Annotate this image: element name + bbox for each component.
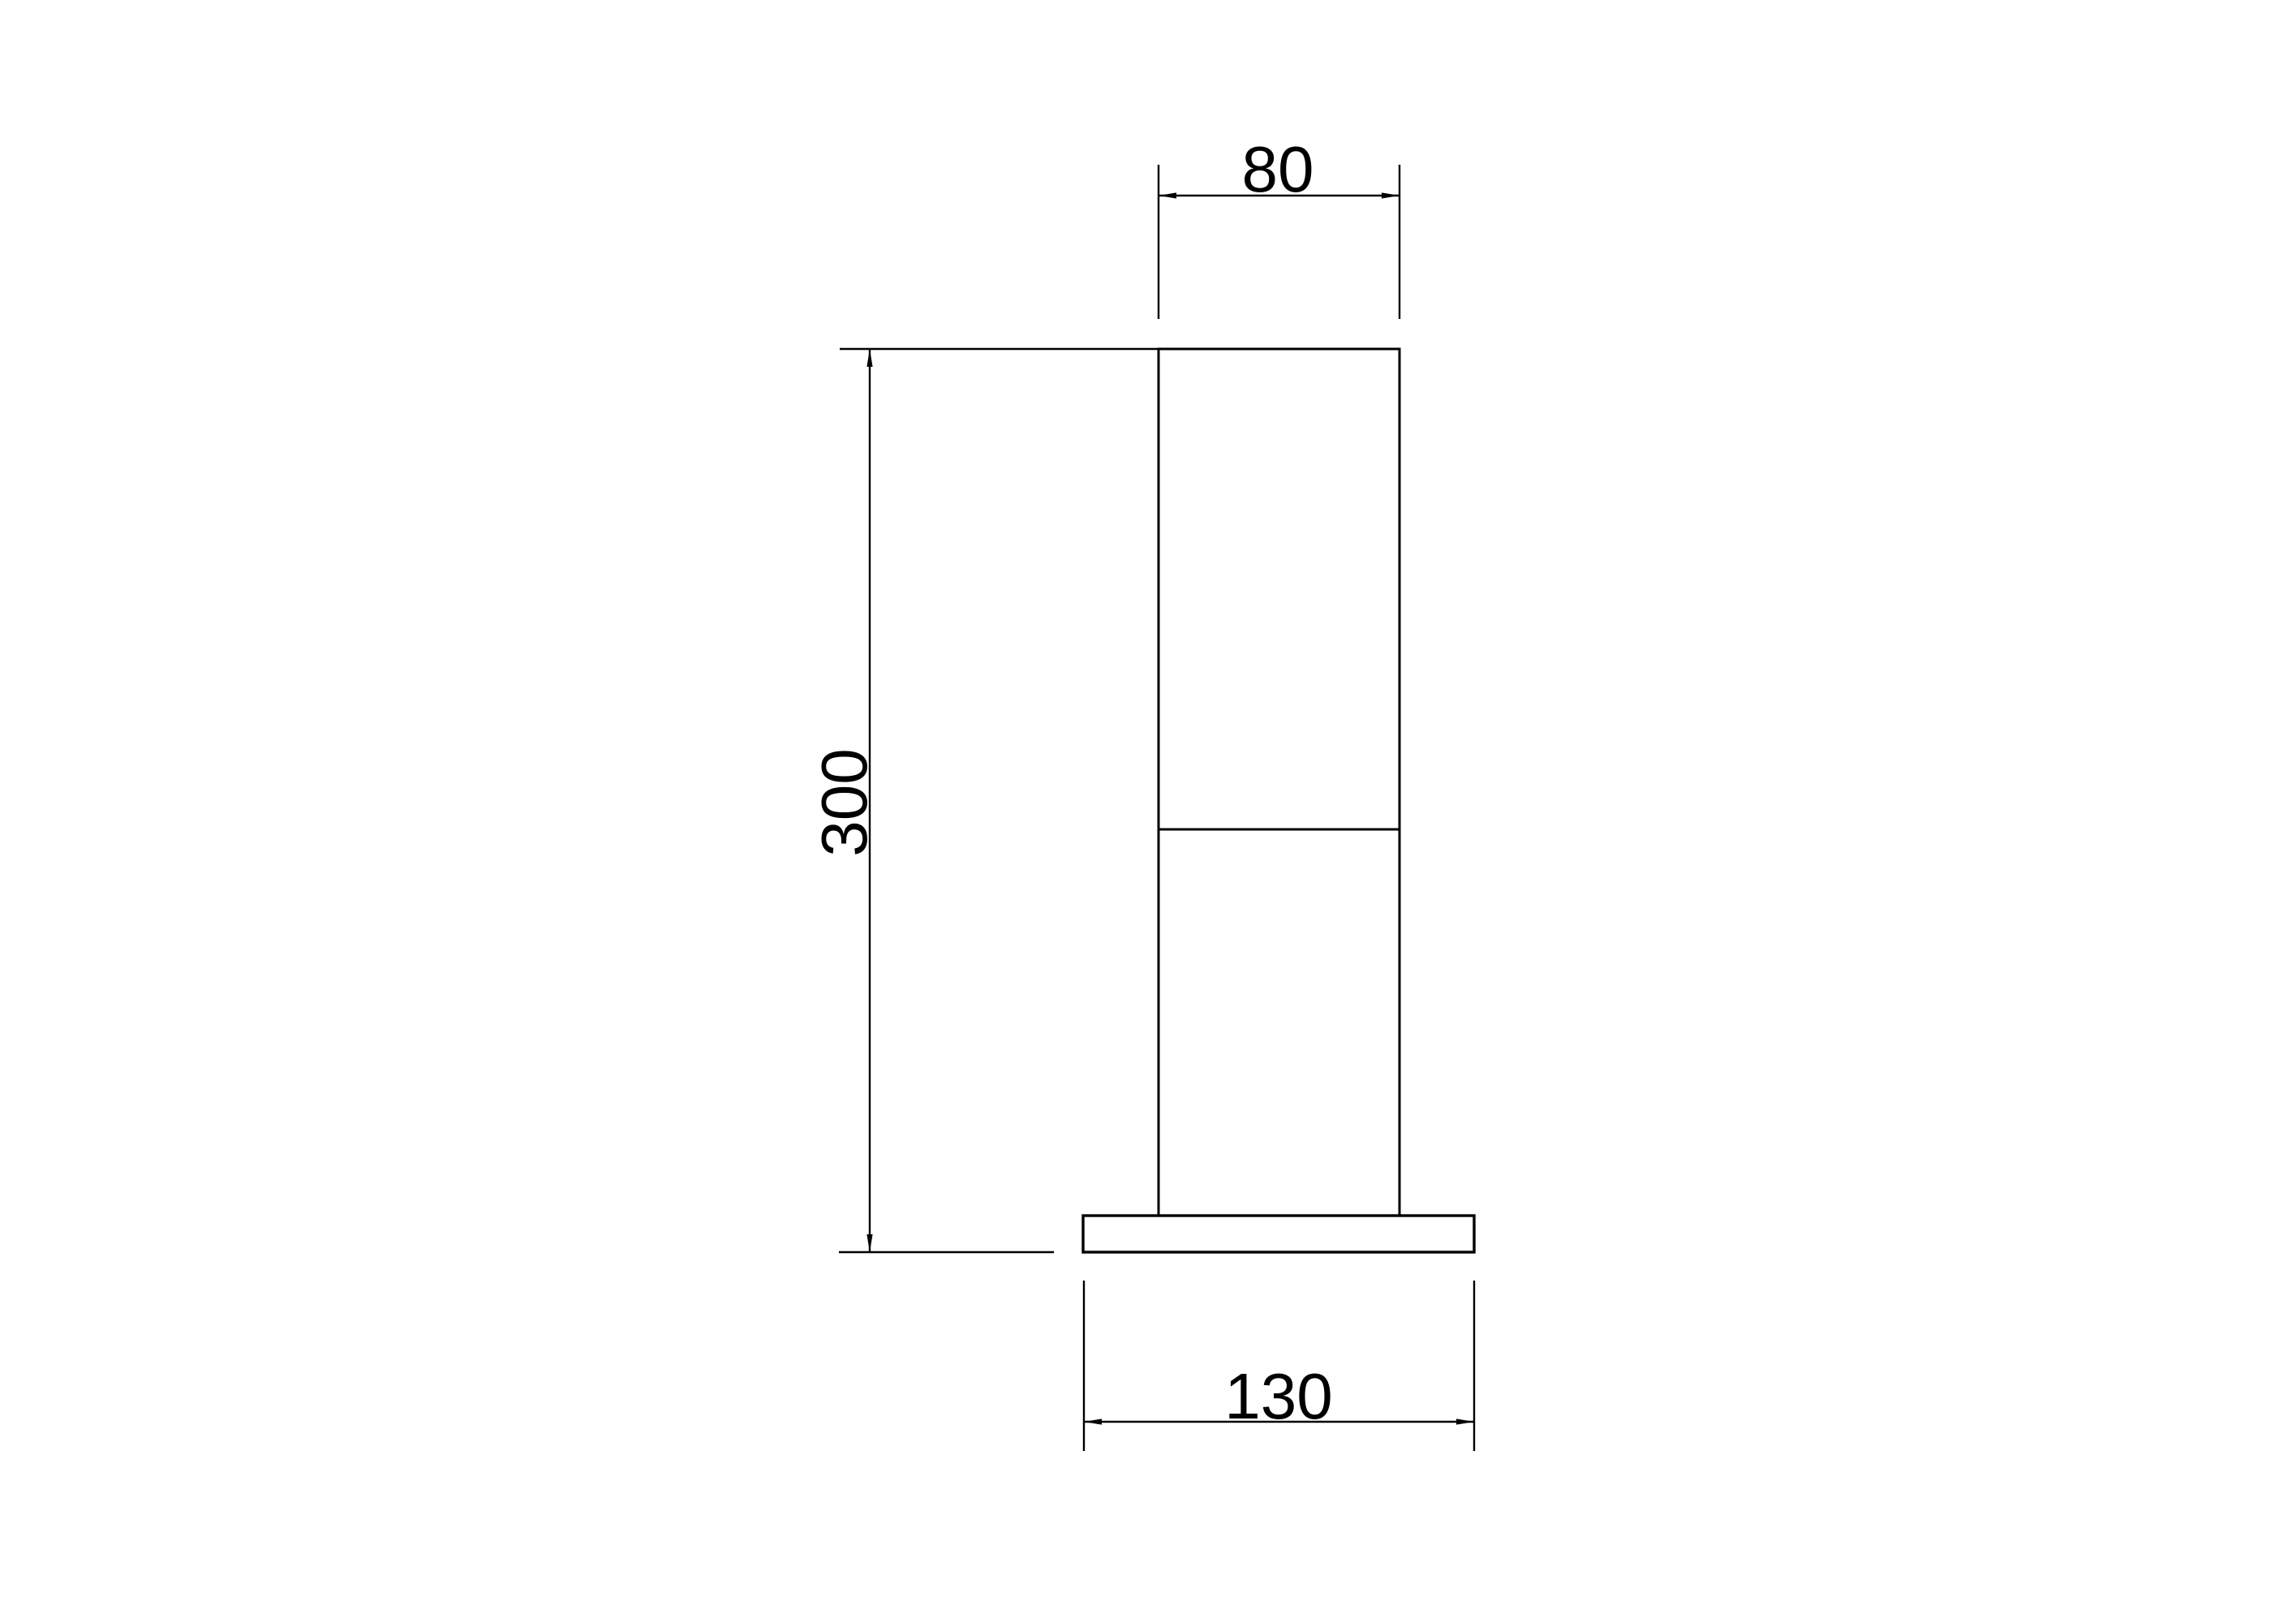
dim-300-arrow-top-icon [866, 349, 872, 367]
dim-130-arrow-left-icon [1084, 1419, 1102, 1424]
dimension-base-width: 130 [1084, 1281, 1474, 1451]
dim-130-arrow-right-icon [1456, 1419, 1474, 1424]
bollard-column [1159, 349, 1400, 1216]
bollard-base-plate [1083, 1216, 1474, 1252]
dim-300-label: 300 [808, 748, 880, 856]
dim-80-arrow-left-icon [1159, 192, 1176, 198]
dim-300-arrow-bottom-icon [866, 1234, 872, 1252]
technical-drawing-canvas: 80 300 130 [0, 0, 2296, 1623]
dimension-top-width: 80 [1159, 133, 1400, 319]
dim-130-label: 130 [1224, 1360, 1332, 1432]
dim-80-arrow-right-icon [1382, 192, 1400, 198]
dim-80-label: 80 [1242, 133, 1314, 205]
dimension-height: 300 [808, 349, 1159, 1252]
bollard-outline [1083, 349, 1474, 1252]
drawing-page: 80 300 130 [0, 0, 2296, 1623]
